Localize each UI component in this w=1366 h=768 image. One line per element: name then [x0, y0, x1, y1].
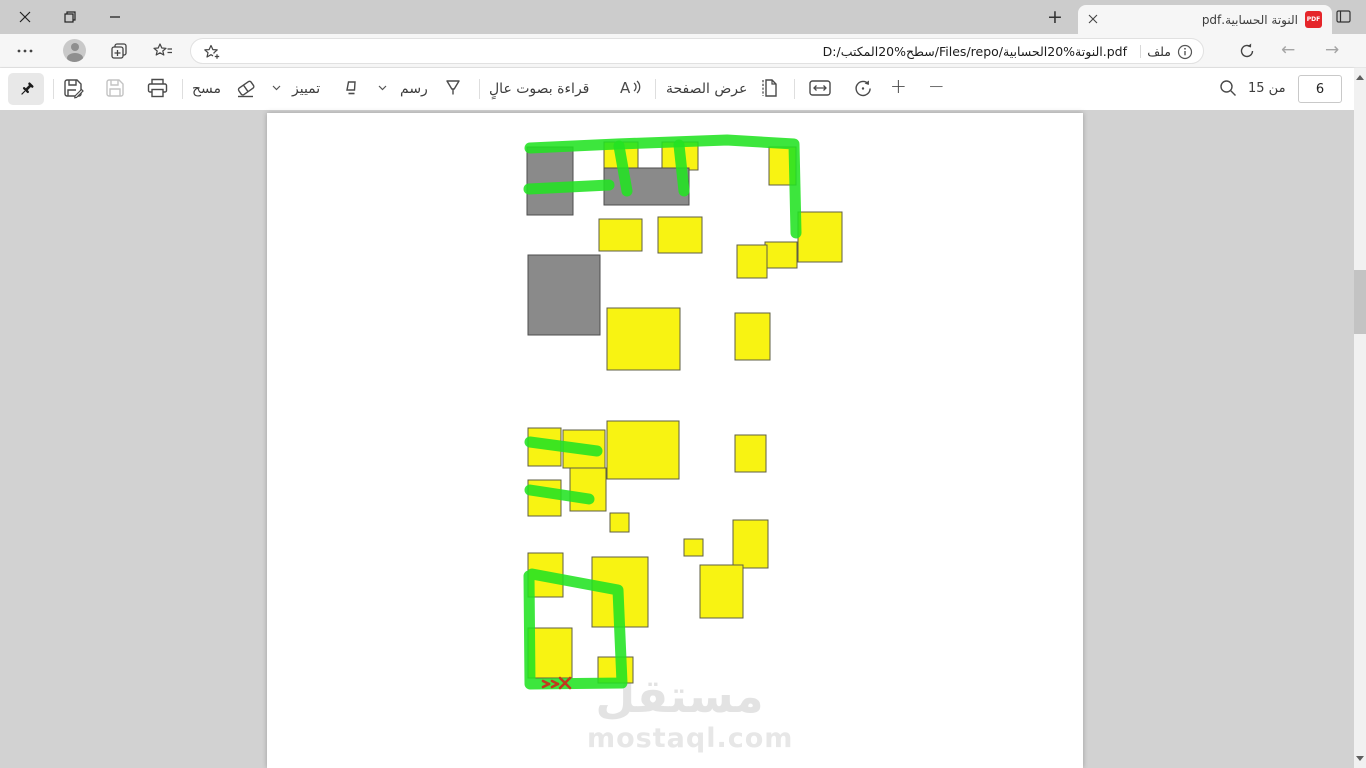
- worksheet-yellow-rect: [599, 219, 642, 251]
- worksheet-yellow-rect: [607, 421, 679, 479]
- file-scheme-badge: ملف: [1147, 44, 1171, 59]
- fit-to-width-button[interactable]: [808, 78, 832, 98]
- print-button[interactable]: [146, 77, 169, 99]
- more-menu-icon: [16, 46, 34, 56]
- save-as-button[interactable]: [62, 77, 84, 99]
- add-favorite-star-icon: [203, 44, 221, 61]
- worksheet-gray-rect: [604, 168, 689, 205]
- highlight-dropdown-chevron[interactable]: [272, 85, 281, 91]
- fit-width-icon: [808, 78, 832, 98]
- avatar-head: [71, 43, 79, 51]
- profile-avatar[interactable]: [63, 39, 86, 62]
- close-icon: [19, 11, 31, 23]
- worksheet-yellow-rect: [570, 468, 606, 511]
- highlight-tool-button[interactable]: [340, 77, 362, 99]
- read-aloud-icon: A: [618, 77, 642, 99]
- refresh-icon: [1238, 42, 1256, 60]
- restore-icon: [64, 11, 76, 23]
- draw-tool-button[interactable]: [442, 77, 464, 99]
- page-view-label[interactable]: عرض الصفحة: [666, 81, 747, 97]
- print-icon: [146, 77, 169, 99]
- info-icon: [1177, 44, 1193, 60]
- pdf-page[interactable]: مستقل mostaql.com: [267, 113, 1083, 768]
- edge-browser-window: + النوتة الحسابية.pdf PDF: [0, 0, 1366, 768]
- worksheet-yellow-rect: [765, 242, 797, 268]
- read-aloud-button[interactable]: A: [618, 77, 642, 99]
- eraser-icon: [234, 77, 258, 99]
- address-bar[interactable]: D:/سطح%20المكتب/Files/repo/النوتة%20الحس…: [190, 38, 1204, 64]
- green-ink-stroke: [679, 145, 684, 191]
- zoom-in-button[interactable]: +: [890, 74, 907, 98]
- active-tab[interactable]: النوتة الحسابية.pdf PDF: [1078, 5, 1332, 34]
- pen-icon: [442, 77, 464, 99]
- back-button[interactable]: ←: [1281, 40, 1295, 60]
- toolbar-divider: [479, 79, 480, 99]
- highlight-tool-label[interactable]: تمييز: [292, 81, 320, 97]
- pdf-viewer-area[interactable]: مستقل mostaql.com: [0, 110, 1354, 768]
- tab-close-button[interactable]: [1088, 14, 1098, 24]
- worksheet-yellow-rect: [684, 539, 703, 556]
- current-page-input[interactable]: 6: [1298, 75, 1342, 103]
- add-favorite-button[interactable]: [203, 44, 221, 61]
- worksheet-yellow-rect: [733, 520, 768, 568]
- collections-icon: [110, 42, 128, 60]
- minimize-icon: [109, 11, 121, 23]
- pdf-favicon-label: PDF: [1307, 16, 1320, 23]
- new-tab-button[interactable]: +: [1042, 4, 1068, 30]
- highlighter-icon: [340, 77, 362, 99]
- chevron-down-icon: [272, 85, 281, 91]
- worksheet-yellow-rect: [607, 308, 680, 370]
- scroll-up-arrow-icon[interactable]: [1356, 75, 1364, 80]
- worksheet-gray-rect: [528, 255, 600, 335]
- worksheet-yellow-rect: [735, 313, 770, 360]
- title-bar: + النوتة الحسابية.pdf PDF: [0, 0, 1366, 34]
- search-icon: [1218, 78, 1238, 98]
- toolbar-divider: [53, 79, 54, 99]
- worksheet-yellow-rect: [610, 513, 629, 532]
- worksheet-gray-rect: [527, 147, 573, 215]
- forward-button[interactable]: →: [1325, 40, 1339, 60]
- favorites-button[interactable]: [153, 42, 173, 60]
- navigation-bar: D:/سطح%20المكتب/Files/repo/النوتة%20الحس…: [0, 34, 1366, 68]
- worksheet-yellow-rect: [798, 212, 842, 262]
- page-info-button[interactable]: [1177, 44, 1193, 60]
- page-view-button[interactable]: [758, 77, 780, 99]
- chevron-down-icon: [378, 85, 387, 91]
- erase-tool-label[interactable]: مسح: [192, 81, 221, 97]
- rotate-button[interactable]: [852, 77, 874, 99]
- window-restore-button[interactable]: [55, 5, 85, 29]
- toolbar-divider: [794, 79, 795, 99]
- avatar-body: [67, 53, 83, 62]
- collections-button[interactable]: [110, 42, 128, 60]
- pdf-toolbar: مسح تمييز رسم قراءة بصوت عالٍ A عرض الصف…: [0, 68, 1354, 110]
- page-count-label: من 15: [1248, 81, 1286, 96]
- pin-toolbar-button[interactable]: [8, 73, 44, 105]
- address-separator: [1140, 45, 1141, 58]
- save-as-icon: [62, 77, 84, 99]
- refresh-button[interactable]: [1238, 42, 1256, 60]
- window-minimize-button[interactable]: [100, 5, 130, 29]
- window-close-button[interactable]: [10, 5, 40, 29]
- worksheet-yellow-rect: [735, 435, 766, 472]
- rotate-icon: [852, 77, 874, 99]
- toolbar-divider: [182, 79, 183, 99]
- pdf-favicon: PDF: [1305, 11, 1322, 28]
- scrollbar-thumb[interactable]: [1354, 270, 1366, 334]
- worksheet-yellow-rect: [700, 565, 743, 618]
- draw-tool-label[interactable]: رسم: [400, 81, 428, 97]
- toolbar-divider: [655, 79, 656, 99]
- zoom-out-button[interactable]: −: [928, 74, 945, 98]
- settings-menu-button[interactable]: [16, 46, 34, 56]
- tab-title: النوتة الحسابية.pdf: [1202, 13, 1298, 27]
- green-ink-stroke: [529, 185, 609, 189]
- tab-actions-button[interactable]: [1336, 10, 1351, 23]
- worksheet-yellow-rect: [658, 217, 702, 253]
- svg-text:A: A: [620, 79, 631, 97]
- worksheet-canvas: [267, 113, 1083, 768]
- favorites-icon: [153, 42, 173, 60]
- tab-actions-icon: [1336, 10, 1351, 23]
- page-view-icon: [758, 77, 780, 99]
- read-aloud-label[interactable]: قراءة بصوت عالٍ: [489, 81, 589, 97]
- search-document-button[interactable]: [1218, 78, 1238, 98]
- draw-dropdown-chevron[interactable]: [378, 85, 387, 91]
- save-button-disabled[interactable]: [104, 77, 126, 99]
- tab-close-icon: [1088, 14, 1098, 24]
- save-icon: [104, 77, 126, 99]
- pin-icon: [17, 80, 36, 99]
- url-display[interactable]: D:/سطح%20المكتب/Files/repo/النوتة%20الحس…: [823, 44, 1127, 59]
- current-page-value: 6: [1316, 82, 1324, 97]
- scroll-down-arrow-icon[interactable]: [1356, 756, 1364, 761]
- erase-tool-button[interactable]: [234, 77, 258, 99]
- vertical-scrollbar[interactable]: [1354, 68, 1366, 768]
- worksheet-yellow-rect: [737, 245, 767, 278]
